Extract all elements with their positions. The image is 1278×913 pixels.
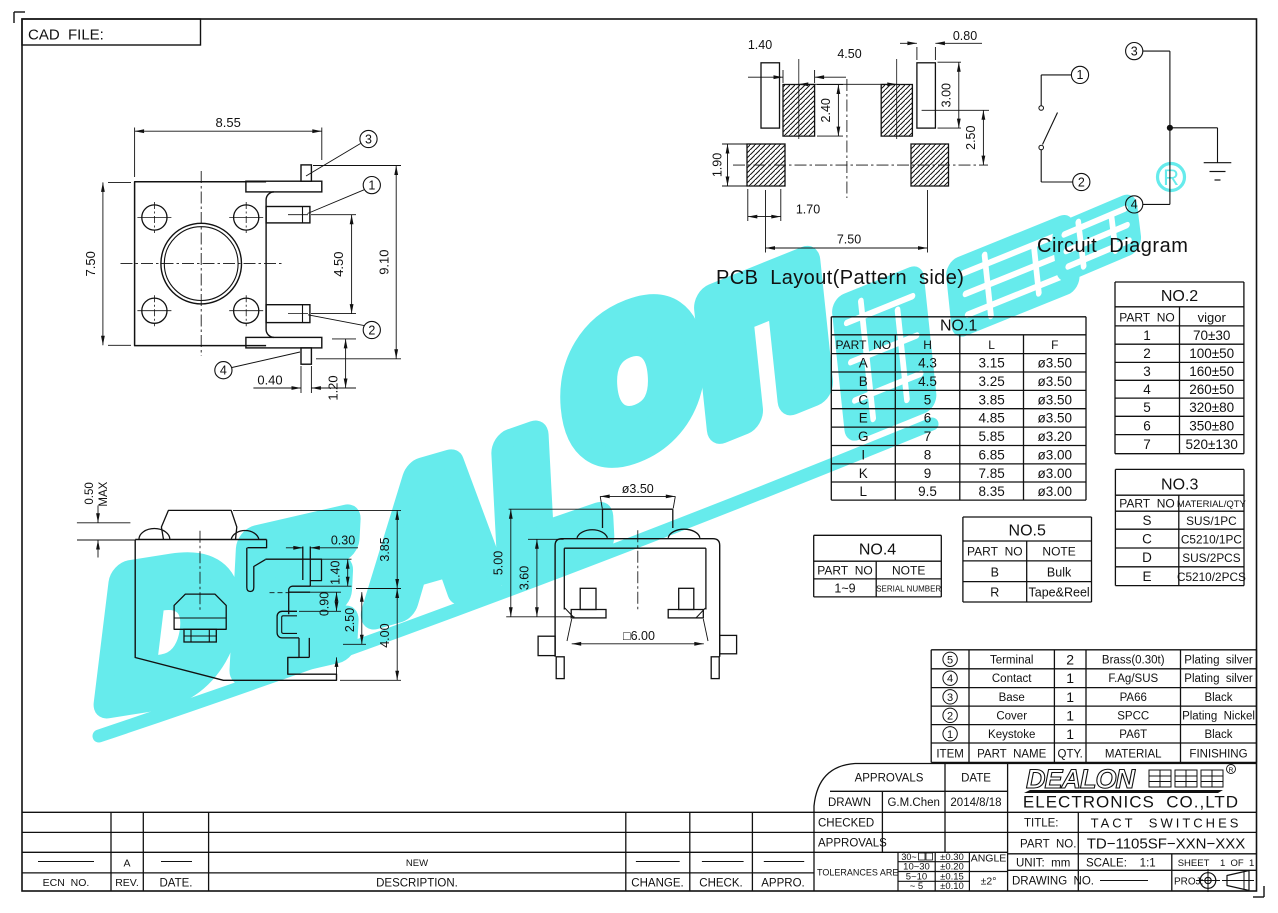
svg-text:3: 3 — [947, 692, 953, 704]
svg-text:3: 3 — [365, 132, 372, 146]
svg-text:DESCRIPTION.: DESCRIPTION. — [376, 878, 458, 890]
svg-text:1: 1 — [368, 178, 375, 192]
svg-text:QTY.: QTY. — [1058, 749, 1083, 761]
svg-text:2.40: 2.40 — [819, 98, 833, 122]
svg-text:REV.: REV. — [115, 877, 139, 889]
svg-text:Cover: Cover — [996, 710, 1027, 722]
svg-text:3.00: 3.00 — [940, 83, 954, 107]
svg-text:A: A — [859, 356, 868, 371]
svg-text:4.85: 4.85 — [979, 411, 1005, 426]
svg-text:CHANGE.: CHANGE. — [631, 878, 683, 890]
svg-text:0.30: 0.30 — [331, 534, 355, 548]
svg-text:2: 2 — [1066, 651, 1074, 667]
svg-text:B: B — [991, 566, 999, 580]
svg-text:ø3.00: ø3.00 — [1037, 484, 1072, 499]
svg-text:B: B — [859, 374, 868, 389]
svg-text:0.40: 0.40 — [257, 372, 282, 387]
svg-text:4.50: 4.50 — [331, 251, 346, 276]
svg-text:Plating silver: Plating silver — [1184, 654, 1253, 666]
svg-text:NO.5: NO.5 — [1009, 523, 1046, 540]
svg-text:APPROVALS: APPROVALS — [818, 838, 887, 850]
svg-text:260±50: 260±50 — [1189, 382, 1234, 397]
svg-text:1.40: 1.40 — [329, 560, 343, 584]
svg-text:1: 1 — [1066, 707, 1074, 723]
svg-text:Base: Base — [999, 692, 1025, 704]
svg-text:9.5: 9.5 — [918, 484, 937, 499]
svg-text:30~: 30~ — [901, 852, 916, 862]
svg-text:Black: Black — [1204, 729, 1232, 741]
svg-text:±0.10: ±0.10 — [940, 881, 964, 892]
svg-text:E: E — [859, 411, 868, 426]
svg-text:2: 2 — [1143, 346, 1151, 361]
svg-text:Bulk: Bulk — [1047, 566, 1072, 580]
svg-text:G: G — [858, 429, 869, 444]
svg-text:0.90: 0.90 — [318, 592, 332, 616]
svg-text:2.50: 2.50 — [964, 125, 978, 149]
svg-text:SERIAL NUMBER: SERIAL NUMBER — [876, 585, 941, 594]
svg-text:D: D — [1142, 550, 1152, 565]
svg-text:ø3.20: ø3.20 — [1037, 429, 1072, 444]
svg-text:SCALE: 1:1: SCALE: 1:1 — [1086, 858, 1156, 870]
svg-text:A: A — [123, 858, 130, 870]
svg-text:Plating silver: Plating silver — [1184, 673, 1253, 685]
svg-text:MATERIAL: MATERIAL — [1105, 749, 1162, 761]
svg-text:NEW: NEW — [406, 858, 428, 869]
svg-text:TD−1105SF−XXN−XXX: TD−1105SF−XXN−XXX — [1087, 836, 1246, 853]
svg-text:PART NO: PART NO — [1119, 311, 1175, 325]
svg-text:UNIT: mm: UNIT: mm — [1016, 858, 1070, 870]
svg-text:1.20: 1.20 — [326, 375, 341, 400]
svg-text:Brass(0.30t): Brass(0.30t) — [1102, 654, 1165, 666]
svg-text:ø3.50: ø3.50 — [1037, 392, 1072, 407]
svg-text:350±80: 350±80 — [1189, 418, 1234, 433]
svg-text:PCB Layout(Pattern side): PCB Layout(Pattern side) — [716, 267, 964, 289]
svg-text:Contact: Contact — [992, 673, 1032, 685]
svg-text:0.50: 0.50 — [84, 482, 96, 504]
svg-text:□6.00: □6.00 — [623, 629, 655, 643]
svg-text:TITLE:: TITLE: — [1024, 818, 1059, 830]
svg-text:PART NO: PART NO — [1119, 497, 1175, 511]
svg-text:5: 5 — [947, 654, 953, 666]
svg-text:NO.3: NO.3 — [1161, 477, 1198, 494]
svg-text:L: L — [860, 484, 868, 499]
svg-text:MAX: MAX — [98, 481, 110, 506]
svg-text:MATERIAL/QTY: MATERIAL/QTY — [1177, 499, 1247, 510]
svg-text:1: 1 — [1143, 328, 1151, 343]
svg-text:R: R — [1229, 767, 1234, 774]
svg-text:1~9: 1~9 — [834, 581, 855, 595]
svg-text:7.50: 7.50 — [83, 251, 98, 276]
svg-text:ø3.00: ø3.00 — [1037, 448, 1072, 463]
svg-text:I: I — [861, 448, 865, 463]
svg-text:ANGLE: ANGLE — [971, 853, 1007, 865]
svg-text:APPROVALS: APPROVALS — [855, 773, 924, 785]
svg-text:0.80: 0.80 — [953, 29, 977, 43]
svg-text:PART NO: PART NO — [836, 338, 892, 352]
svg-text:4: 4 — [220, 364, 227, 378]
svg-text:1: 1 — [1077, 68, 1084, 82]
svg-text:K: K — [859, 466, 868, 481]
svg-text:5: 5 — [1143, 400, 1151, 415]
svg-text:NO.4: NO.4 — [859, 542, 896, 559]
svg-text:1.90: 1.90 — [711, 153, 725, 177]
svg-text:DRAWING NO.: DRAWING NO. — [1012, 876, 1094, 888]
svg-text:TOLERANCES ARE: TOLERANCES ARE — [817, 868, 898, 878]
svg-text:DRAWN: DRAWN — [828, 797, 871, 809]
svg-text:8: 8 — [924, 448, 932, 463]
svg-text:NO.2: NO.2 — [1161, 288, 1198, 305]
svg-text:3: 3 — [1143, 364, 1151, 379]
svg-text:Tape&Reel: Tape&Reel — [1029, 586, 1090, 600]
svg-text:F.Ag/SUS: F.Ag/SUS — [1108, 673, 1158, 685]
svg-text:9: 9 — [924, 466, 932, 481]
svg-text:70±30: 70±30 — [1193, 328, 1230, 343]
svg-text:8.35: 8.35 — [979, 484, 1005, 499]
svg-text:±2°: ±2° — [981, 876, 997, 888]
svg-text:ECN NO.: ECN NO. — [43, 877, 90, 889]
svg-text:G.M.Chen: G.M.Chen — [887, 797, 939, 809]
svg-text:CAD FILE:: CAD FILE: — [28, 27, 104, 44]
svg-text:1: 1 — [1066, 689, 1074, 705]
svg-text:ø3.50: ø3.50 — [1037, 411, 1072, 426]
svg-text:1: 1 — [947, 729, 953, 741]
svg-text:3.15: 3.15 — [979, 356, 1005, 371]
svg-text:Keystoke: Keystoke — [988, 729, 1035, 741]
svg-text:NOTE: NOTE — [1042, 545, 1075, 559]
svg-text:ø3.50: ø3.50 — [1037, 374, 1072, 389]
svg-text:1: 1 — [1066, 670, 1074, 686]
svg-text:CHECKED: CHECKED — [818, 818, 874, 830]
svg-text:4: 4 — [1131, 198, 1138, 212]
svg-text:5: 5 — [924, 392, 932, 407]
svg-text:PART NAME: PART NAME — [977, 749, 1047, 761]
svg-text:SUS/2PCS: SUS/2PCS — [1182, 551, 1240, 565]
svg-text:CHECK.: CHECK. — [699, 878, 742, 890]
svg-text:ø3.50: ø3.50 — [622, 482, 654, 496]
svg-text:ITEM: ITEM — [936, 749, 963, 761]
svg-text:PA66: PA66 — [1120, 692, 1147, 704]
svg-text:6: 6 — [924, 411, 932, 426]
svg-text:5.85: 5.85 — [979, 429, 1005, 444]
svg-text:C5210/1PC: C5210/1PC — [1181, 532, 1242, 546]
svg-text:Terminal: Terminal — [990, 654, 1033, 666]
svg-text:3.25: 3.25 — [979, 374, 1005, 389]
svg-text:7.50: 7.50 — [837, 233, 861, 247]
svg-text:520±130: 520±130 — [1185, 437, 1237, 452]
svg-text:Plating Nickel: Plating Nickel — [1182, 710, 1255, 722]
svg-text:TACT SWITCHES: TACT SWITCHES — [1091, 816, 1242, 831]
svg-text:7: 7 — [924, 429, 932, 444]
svg-text:SPCC: SPCC — [1117, 710, 1149, 722]
svg-text:C: C — [1142, 531, 1152, 546]
svg-text:PART NO: PART NO — [967, 545, 1023, 559]
svg-text:3: 3 — [1131, 44, 1138, 58]
svg-text:DEALON: DEALON — [1026, 764, 1136, 794]
svg-text:DATE.: DATE. — [159, 878, 192, 890]
svg-text:FINISHING: FINISHING — [1189, 749, 1247, 761]
svg-text:PROJ:: PROJ: — [1174, 877, 1203, 888]
svg-text:6: 6 — [1143, 418, 1151, 433]
svg-text:SUS/1PC: SUS/1PC — [1186, 514, 1237, 528]
svg-text:DATE: DATE — [961, 773, 991, 785]
svg-text:H: H — [923, 338, 932, 352]
svg-text:5.00: 5.00 — [491, 551, 505, 575]
svg-text:APPRO.: APPRO. — [761, 878, 804, 890]
svg-text:ø3.00: ø3.00 — [1037, 466, 1072, 481]
svg-text:PART NO: PART NO — [817, 564, 873, 578]
svg-text:NO.1: NO.1 — [940, 318, 977, 335]
svg-text:2014/8/18: 2014/8/18 — [950, 797, 1001, 809]
svg-text:100±50: 100±50 — [1189, 346, 1234, 361]
svg-text:3.85: 3.85 — [979, 392, 1005, 407]
svg-text:SHEET 1 OF 1: SHEET 1 OF 1 — [1178, 858, 1255, 869]
svg-text:ELECTRONICS CO.,LTD: ELECTRONICS CO.,LTD — [1023, 793, 1239, 812]
svg-text:8.55: 8.55 — [216, 115, 241, 130]
svg-text:1.40: 1.40 — [748, 38, 772, 52]
svg-text:F: F — [1051, 338, 1058, 352]
svg-text:2: 2 — [1078, 175, 1085, 189]
svg-text:320±80: 320±80 — [1189, 400, 1234, 415]
svg-text:C5210/2PCS: C5210/2PCS — [1177, 570, 1246, 584]
svg-text:Circuit Diagram: Circuit Diagram — [1037, 235, 1188, 257]
svg-text:4.3: 4.3 — [918, 356, 937, 371]
svg-text:3.85: 3.85 — [378, 537, 392, 561]
svg-text:R: R — [990, 586, 999, 600]
svg-text:6.85: 6.85 — [979, 448, 1005, 463]
svg-text:E: E — [1142, 569, 1151, 584]
svg-text:C: C — [858, 392, 868, 407]
svg-text:S: S — [1142, 513, 1151, 528]
svg-text:9.10: 9.10 — [377, 249, 392, 274]
svg-text:160±50: 160±50 — [1189, 364, 1234, 379]
svg-text:vigor: vigor — [1198, 310, 1227, 325]
svg-text:ø3.50: ø3.50 — [1037, 356, 1072, 371]
svg-text:4: 4 — [1143, 382, 1151, 397]
svg-text:~ 5: ~ 5 — [910, 881, 923, 892]
svg-text:4.50: 4.50 — [837, 47, 861, 61]
svg-text:NOTE: NOTE — [892, 564, 925, 578]
svg-text:4: 4 — [947, 673, 953, 685]
svg-text:4.5: 4.5 — [918, 374, 937, 389]
svg-text:4.00: 4.00 — [378, 623, 392, 647]
svg-text:Black: Black — [1204, 692, 1232, 704]
svg-text:7: 7 — [1143, 437, 1151, 452]
svg-text:PA6T: PA6T — [1119, 729, 1147, 741]
svg-text:R: R — [1163, 165, 1179, 190]
svg-text:3.60: 3.60 — [518, 566, 532, 590]
svg-text:7.85: 7.85 — [979, 466, 1005, 481]
svg-text:PART NO.: PART NO. — [1020, 839, 1076, 851]
svg-text:2: 2 — [368, 323, 375, 337]
svg-text:2: 2 — [947, 710, 953, 722]
svg-text:1.70: 1.70 — [796, 203, 820, 217]
svg-text:1: 1 — [1066, 726, 1074, 742]
svg-text:2.50: 2.50 — [343, 608, 357, 632]
svg-text:L: L — [988, 338, 995, 352]
